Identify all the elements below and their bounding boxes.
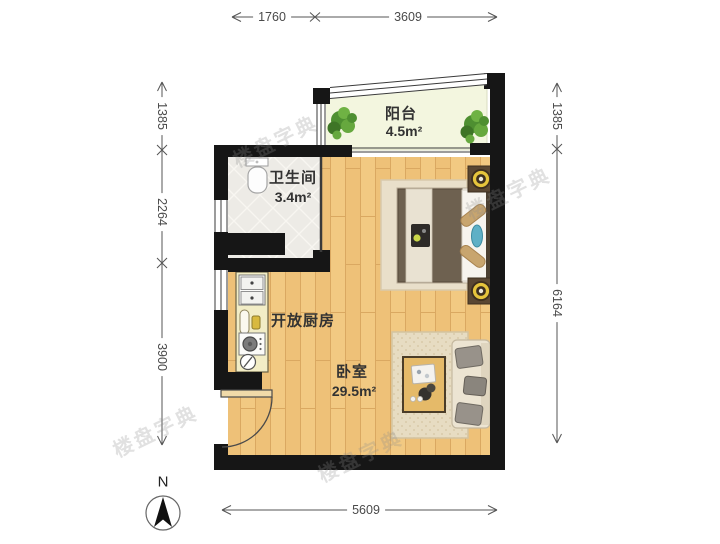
- sofa: [452, 340, 490, 428]
- bed: [397, 188, 495, 283]
- bed-tray: [411, 224, 430, 247]
- bedroom-area: 29.5m²: [332, 383, 376, 399]
- dim-right-1385: 1385: [550, 97, 564, 135]
- bedroom-label: 卧室: [336, 361, 368, 382]
- floor-plan-page: 阳台 4.5m² 卫生间 3.4m² 开放厨房 卧室 29.5m² 1760 3…: [0, 0, 720, 544]
- balcony-area: 4.5m²: [386, 123, 423, 139]
- toilet: [246, 158, 268, 193]
- floor-plan-graphic: [0, 0, 720, 544]
- kitchen-window: [214, 270, 228, 310]
- kitchen-counter: [236, 272, 268, 372]
- dim-left-1385: 1385: [155, 97, 169, 135]
- dim-left-3900: 3900: [155, 338, 169, 376]
- dim-top-1760: 1760: [253, 10, 291, 24]
- bathroom-label: 卫生间: [269, 167, 317, 188]
- stove: [239, 275, 265, 305]
- north-arrow-icon: [146, 496, 180, 530]
- coffee-table: [403, 357, 445, 412]
- balcony-label: 阳台: [385, 103, 417, 124]
- sink: [239, 333, 265, 355]
- dim-right-6164: 6164: [550, 284, 564, 322]
- dim-left-2264: 2264: [155, 193, 169, 231]
- bathroom-window: [214, 200, 228, 232]
- bathroom-area: 3.4m²: [275, 189, 312, 205]
- north-label: N: [158, 474, 169, 491]
- kitchen-label: 开放厨房: [271, 310, 335, 331]
- faucet: [241, 355, 256, 370]
- dim-bottom-5609: 5609: [347, 503, 385, 517]
- balcony-side-window: [316, 104, 326, 145]
- dim-top-3609: 3609: [389, 10, 427, 24]
